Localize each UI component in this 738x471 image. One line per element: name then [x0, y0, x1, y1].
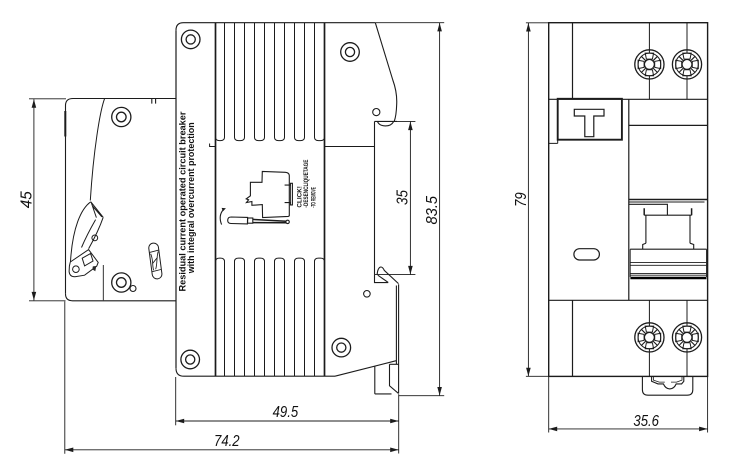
svg-text:-DESENCLIQUETAGE: -DESENCLIQUETAGE [303, 160, 310, 208]
svg-text:74.2: 74.2 [214, 433, 240, 450]
svg-text:83.5: 83.5 [424, 196, 441, 225]
svg-text:49.5: 49.5 [273, 404, 299, 421]
svg-text:35.6: 35.6 [633, 413, 659, 430]
svg-text:45: 45 [19, 191, 36, 208]
svg-text:35: 35 [394, 190, 411, 205]
svg-text:-TO REMOVE: -TO REMOVE [311, 187, 318, 208]
svg-text:with integral overcurrent prot: with integral overcurrent protection [186, 122, 197, 274]
svg-text:79: 79 [513, 192, 530, 207]
